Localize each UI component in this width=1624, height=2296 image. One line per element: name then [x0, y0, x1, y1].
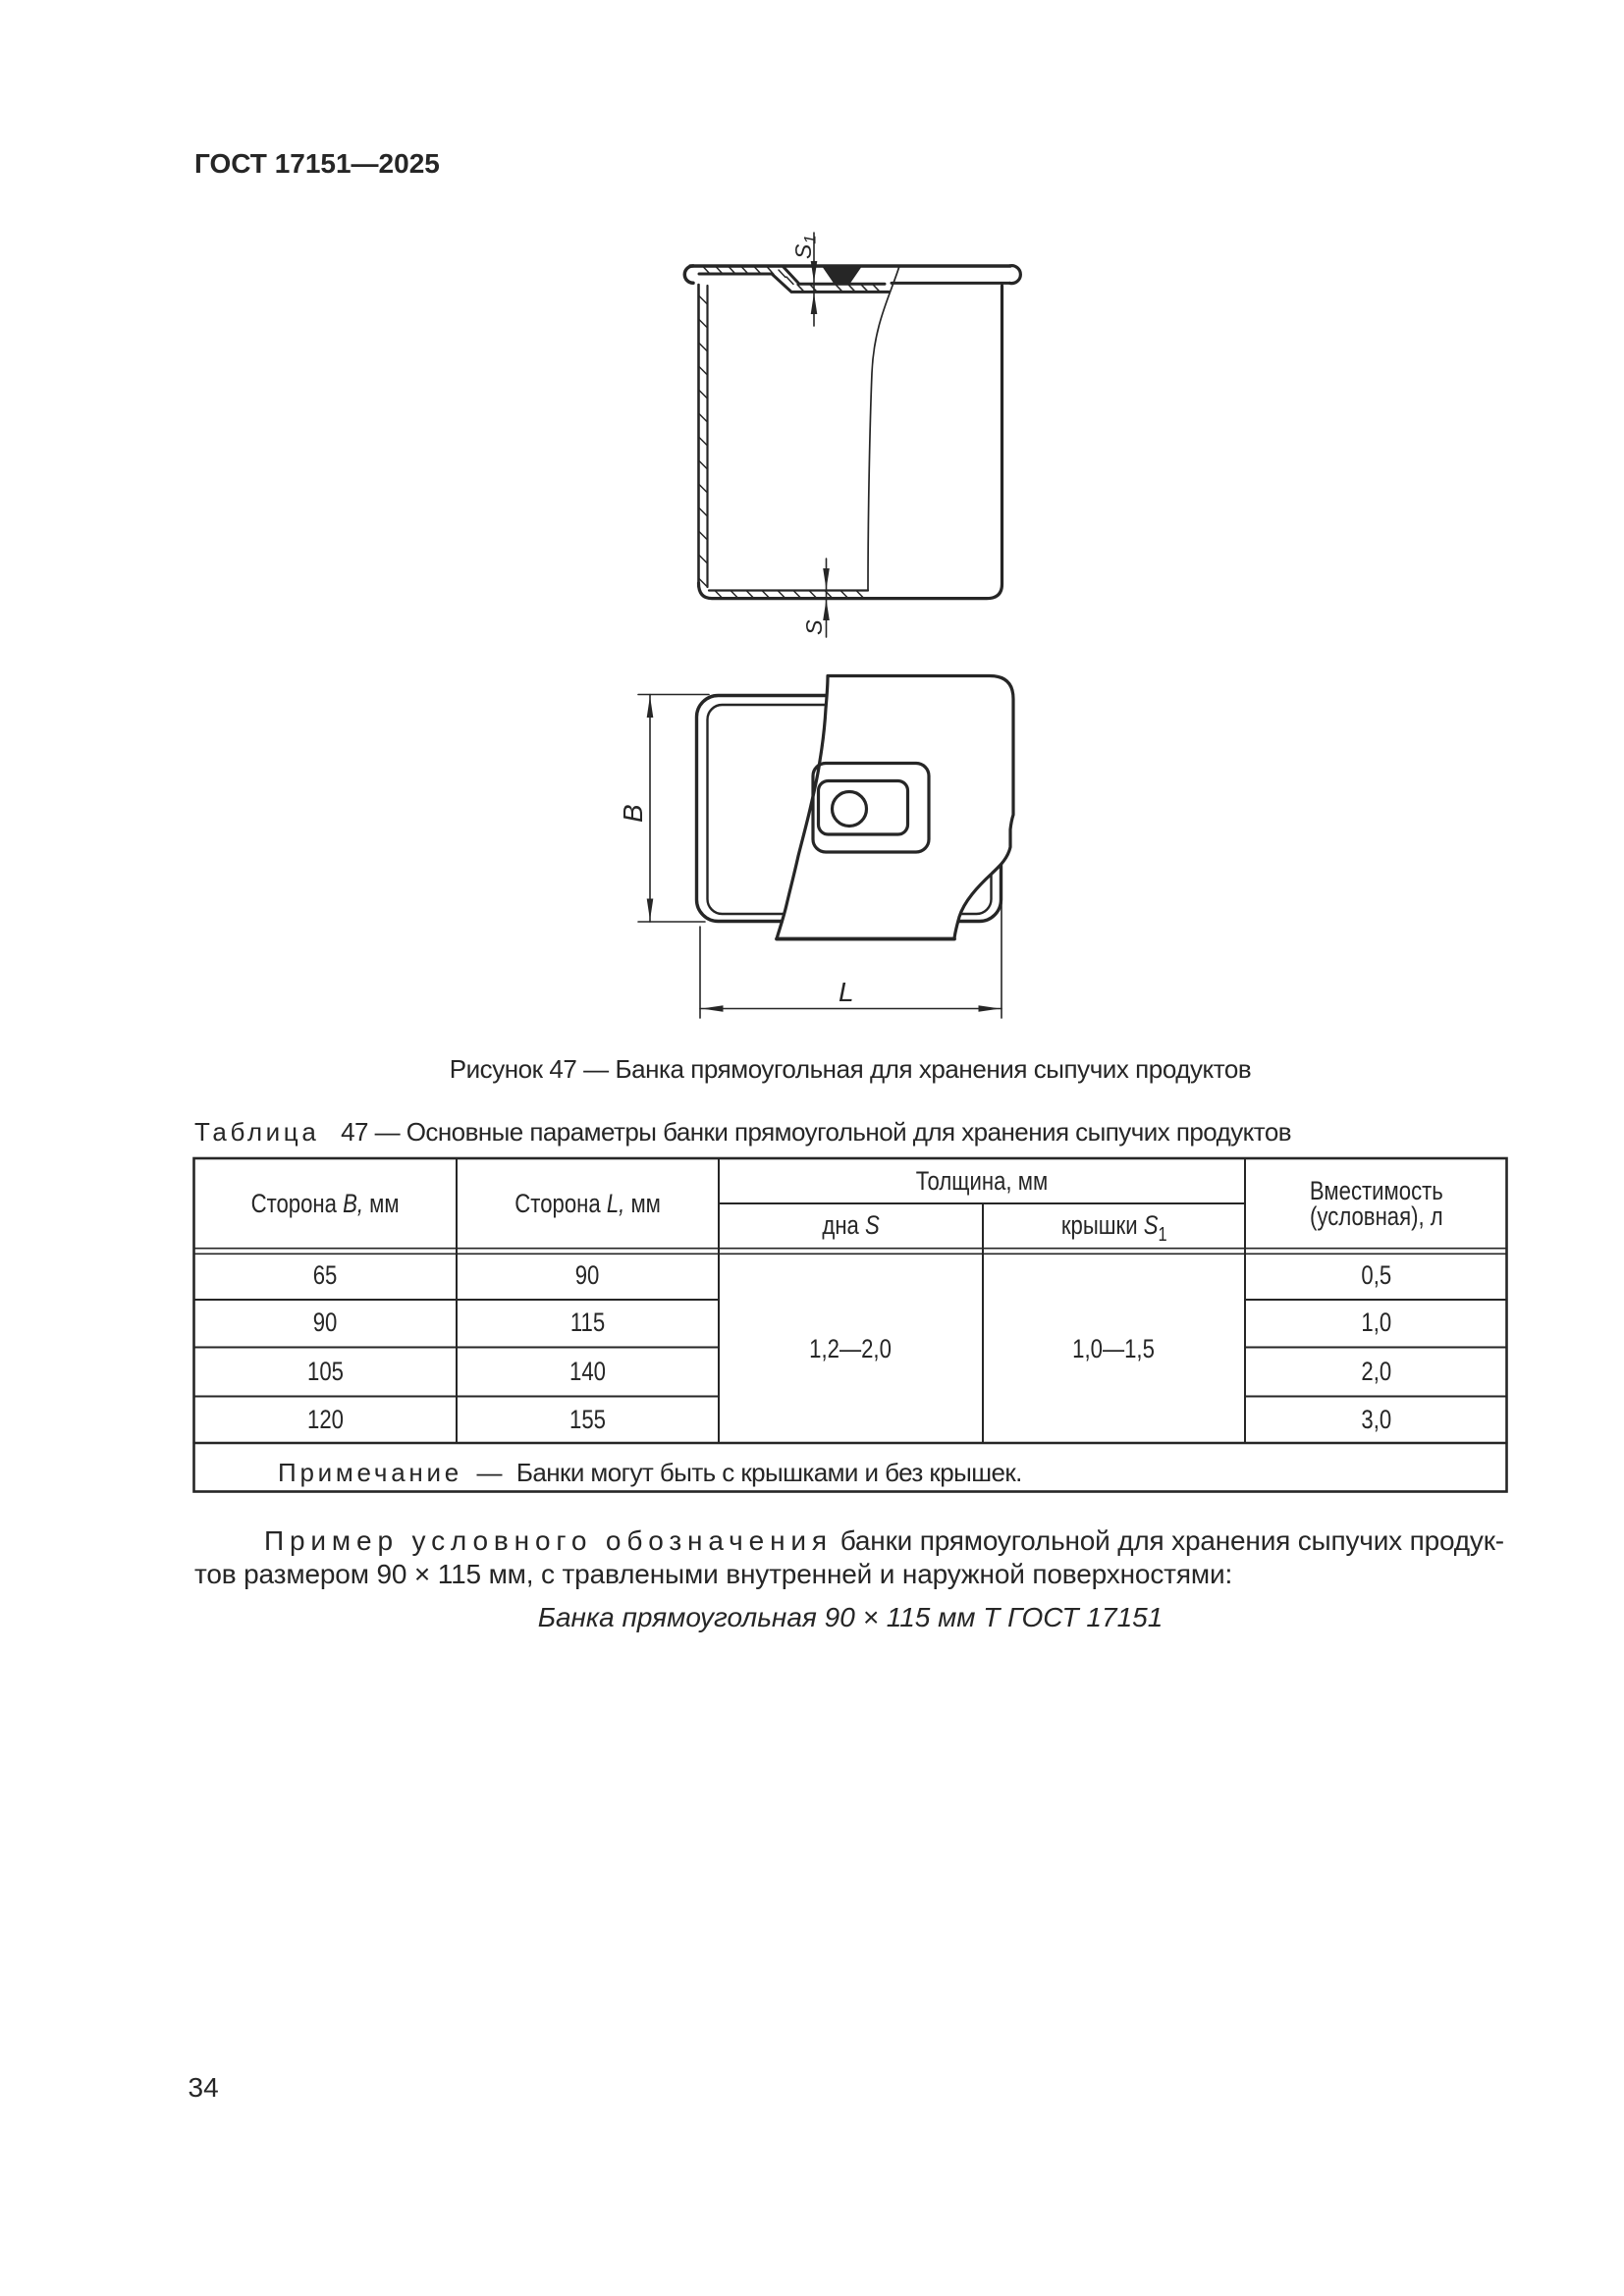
svg-text:L: L [839, 977, 854, 1007]
svg-text:S1: S1 [790, 235, 820, 259]
svg-text:S: S [801, 619, 827, 635]
svg-text:B: B [618, 804, 648, 823]
